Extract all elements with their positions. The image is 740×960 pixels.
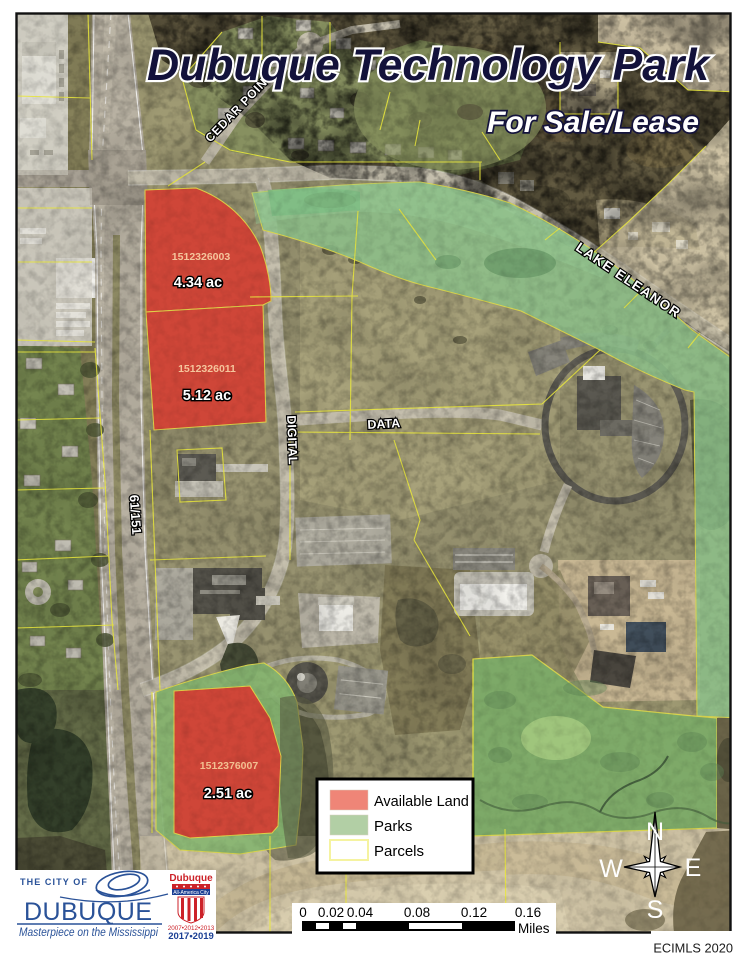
svg-text:1512376007: 1512376007 [200,760,259,772]
svg-text:0: 0 [299,905,307,920]
svg-text:61/151: 61/151 [127,494,145,535]
svg-text:Available Land: Available Land [374,794,469,810]
svg-text:For Sale/Lease: For Sale/Lease [487,106,699,139]
svg-text:Parcels: Parcels [374,843,424,860]
svg-text:1512326011: 1512326011 [178,363,236,375]
svg-text:0.08: 0.08 [404,905,430,920]
svg-text:All-America City: All-America City [173,890,209,896]
svg-text:2017•2019: 2017•2019 [168,931,214,942]
svg-text:2.51 ac: 2.51 ac [204,786,252,802]
svg-text:E: E [685,854,702,882]
svg-text:0.12: 0.12 [461,905,487,920]
svg-text:0.16: 0.16 [515,905,541,920]
svg-text:0.04: 0.04 [347,905,374,920]
svg-text:THE CITY OF: THE CITY OF [20,877,88,887]
svg-text:Dubuque: Dubuque [169,873,213,884]
svg-text:5.12 ac: 5.12 ac [183,388,231,404]
svg-text:DIGITAL: DIGITAL [284,415,300,465]
svg-text:Parks: Parks [374,818,412,835]
svg-text:0.02: 0.02 [318,905,344,920]
svg-text:Masterpiece on the Mississippi: Masterpiece on the Mississippi [19,927,158,939]
svg-text:DATA: DATA [367,416,401,432]
svg-text:N: N [646,818,664,846]
svg-text:4.34 ac: 4.34 ac [174,275,222,291]
svg-text:ECIMLS 2020: ECIMLS 2020 [653,941,733,956]
svg-text:Miles: Miles [518,921,550,936]
svg-text:S: S [647,896,664,924]
svg-text:Dubuque Technology Park: Dubuque Technology Park [147,41,711,90]
svg-text:DUBUQUE: DUBUQUE [24,898,153,926]
svg-text:W: W [599,855,623,883]
svg-text:1512326003: 1512326003 [172,251,231,263]
